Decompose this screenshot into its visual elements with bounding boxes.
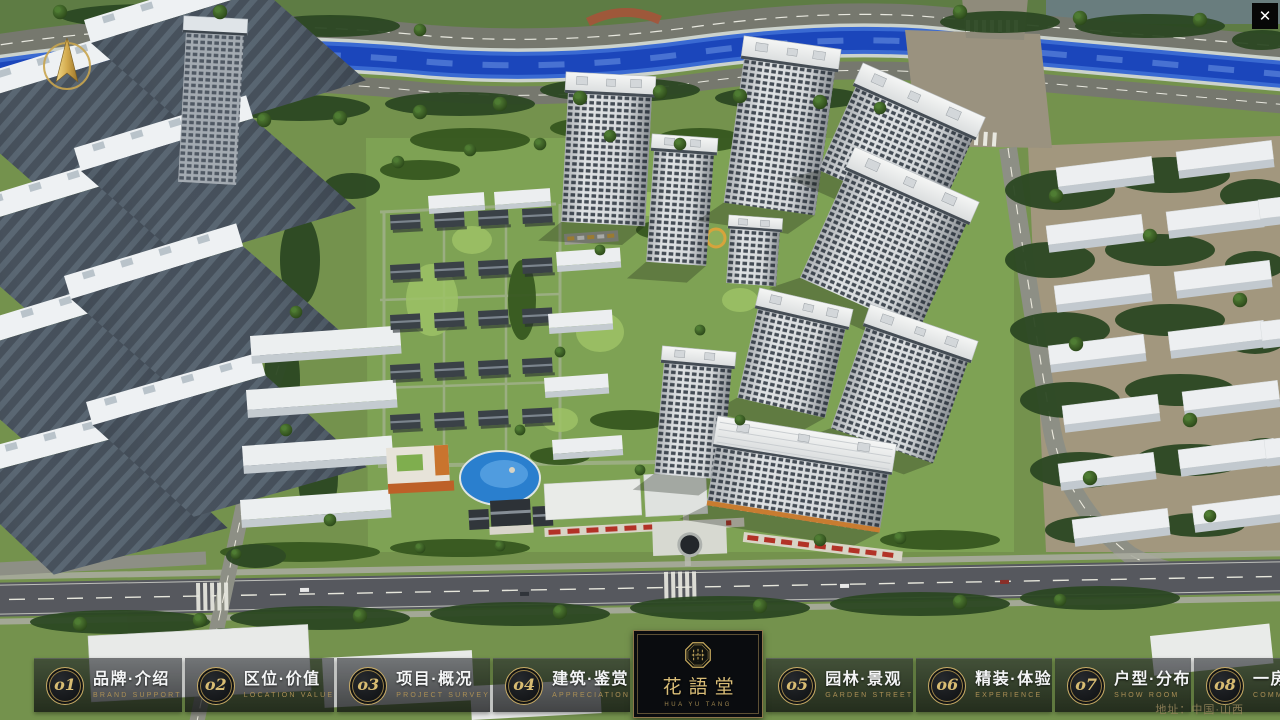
- project-logo-panel[interactable]: 花語堂 HUA YU TANG: [633, 630, 763, 718]
- nav-subtitle: EXPERIENCE: [975, 692, 1052, 699]
- nav-subtitle: PROJECT SURVEY: [396, 692, 490, 699]
- nav-item-architecture[interactable]: o4 建筑·鉴赏APPRECIATION: [493, 658, 630, 712]
- nav-number-badge: o5: [778, 667, 816, 705]
- close-icon: ✕: [1259, 7, 1272, 25]
- nav-number: o6: [936, 675, 958, 694]
- nav-subtitle: APPRECIATION: [552, 692, 630, 699]
- nav-group-left: o1 品牌·介绍BRAND SUPPORT o2 区位·价值LOCATION V…: [34, 658, 630, 712]
- nav-number: o3: [357, 675, 379, 694]
- nav-subtitle: LOCATION VALUE: [244, 692, 334, 699]
- nav-number-badge: o7: [1067, 667, 1105, 705]
- project-logo-title: 花語堂: [656, 672, 741, 699]
- nav-number-badge: o8: [1206, 667, 1244, 705]
- nav-number-badge: o3: [349, 667, 387, 705]
- nav-number-badge: o4: [505, 667, 543, 705]
- nav-subtitle: COMMUNITY: [1253, 692, 1280, 699]
- nav-number-badge: o2: [197, 667, 235, 705]
- nav-title: 区位·价值: [244, 672, 334, 688]
- nav-subtitle: SHOW ROOM: [1114, 692, 1191, 699]
- nav-title: 项目·概况: [396, 672, 490, 688]
- close-button[interactable]: ✕: [1252, 3, 1278, 29]
- compass-icon: [38, 34, 96, 96]
- nav-number-badge: o6: [928, 667, 966, 705]
- nav-title: 品牌·介绍: [93, 672, 182, 688]
- nav-item-project-overview[interactable]: o3 项目·概况PROJECT SURVEY: [337, 658, 490, 712]
- project-address: 地址：中国·山西: [1155, 701, 1244, 717]
- nav-item-brand-intro[interactable]: o1 品牌·介绍BRAND SUPPORT: [34, 658, 182, 712]
- nav-item-landscape[interactable]: o5 园林·景观GARDEN STREET: [766, 658, 913, 712]
- logo-seal-icon: [684, 641, 712, 669]
- nav-subtitle: BRAND SUPPORT: [93, 692, 182, 699]
- master-plan-render: [0, 0, 1280, 720]
- nav-title: 户型·分布: [1114, 672, 1191, 688]
- nav-number: o5: [786, 675, 808, 694]
- nav-number-badge: o1: [46, 667, 84, 705]
- nav-title: 一房·一景: [1253, 672, 1280, 688]
- nav-item-location-value[interactable]: o2 区位·价值LOCATION VALUE: [185, 658, 334, 712]
- nav-number: o8: [1214, 675, 1236, 694]
- nav-title: 精装·体验: [975, 672, 1052, 688]
- nav-title: 建筑·鉴赏: [552, 672, 630, 688]
- bottom-navigation: o1 品牌·介绍BRAND SUPPORT o2 区位·价值LOCATION V…: [0, 658, 1280, 712]
- sales-presentation-screen: ✕ o1 品牌·介绍BRAND SUPPORT o2 区位·价值LOCATION…: [0, 0, 1280, 720]
- nav-number: o4: [513, 675, 535, 694]
- nav-title: 园林·景观: [825, 672, 913, 688]
- nav-number: o1: [54, 675, 76, 694]
- nav-number: o2: [205, 675, 227, 694]
- nav-number: o7: [1075, 675, 1097, 694]
- project-logo-subtitle: HUA YU TANG: [664, 702, 732, 708]
- nav-subtitle: GARDEN STREET: [825, 692, 913, 699]
- nav-item-interior-experience[interactable]: o6 精装·体验EXPERIENCE: [916, 658, 1052, 712]
